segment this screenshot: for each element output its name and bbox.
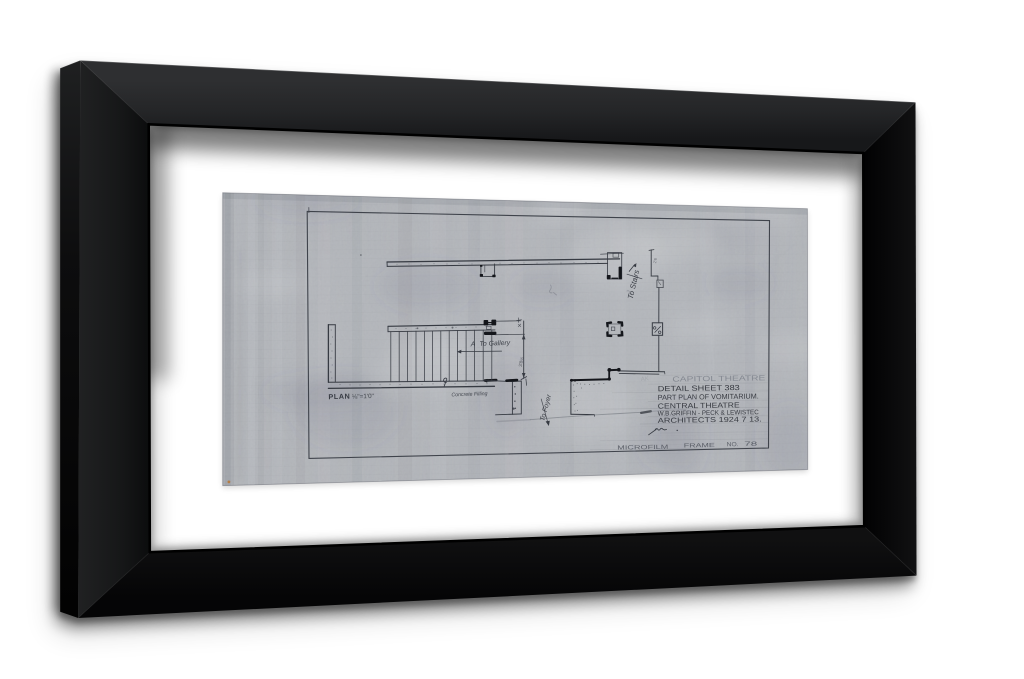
svg-text:To Gallery: To Gallery <box>479 340 511 348</box>
svg-text:FRAME: FRAME <box>684 443 715 449</box>
svg-text:AK: AK <box>641 376 650 383</box>
svg-text:NO.: NO. <box>727 442 739 448</box>
svg-text:Concrete Filling: Concrete Filling <box>451 391 487 398</box>
svg-text:MICROFILM: MICROFILM <box>617 445 668 452</box>
svg-text:78: 78 <box>744 442 758 448</box>
svg-text:CAPITOL THEATRE: CAPITOL THEATRE <box>672 373 765 383</box>
svg-text:ARCHITECTS 1924 7 13.: ARCHITECTS 1924 7 13. <box>658 414 762 424</box>
svg-text:⅛"=1'0": ⅛"=1'0" <box>352 393 374 401</box>
svg-text:A: A <box>470 341 476 348</box>
svg-text:PLAN: PLAN <box>328 392 350 402</box>
